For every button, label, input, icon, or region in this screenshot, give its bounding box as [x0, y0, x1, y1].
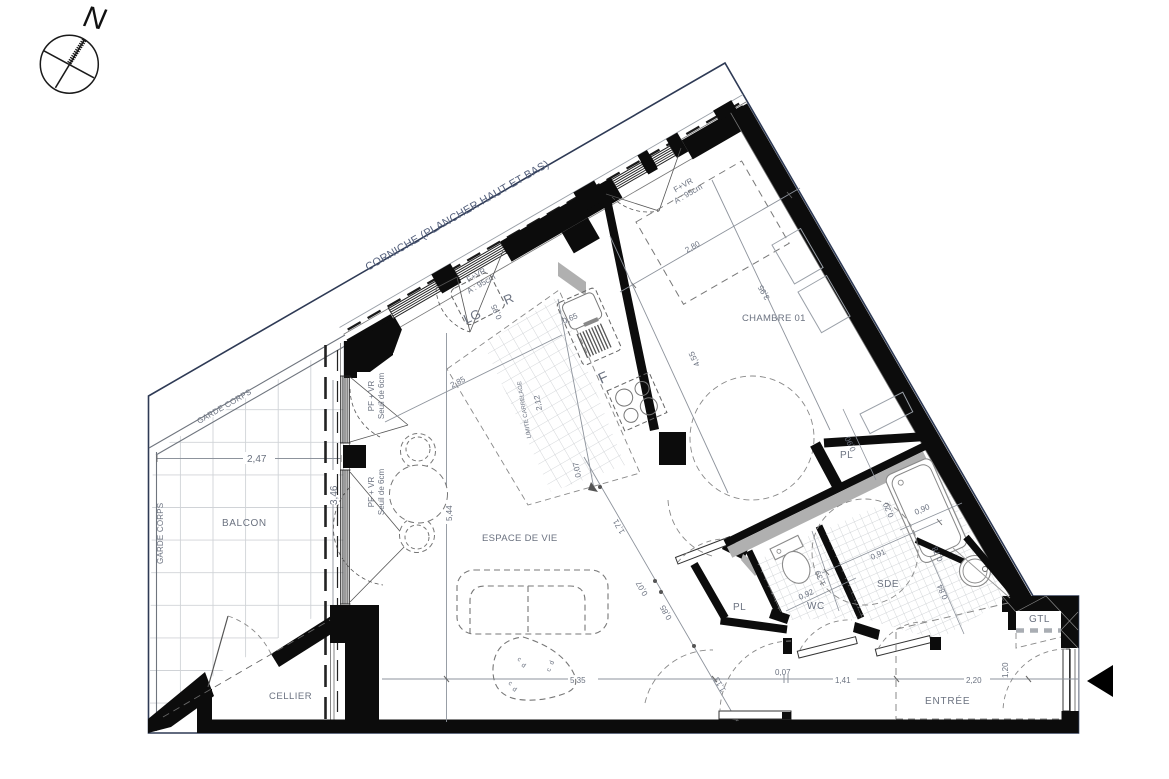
- svg-text:1,20: 1,20: [1001, 662, 1010, 678]
- svg-text:GARDE CORPS: GARDE CORPS: [156, 503, 165, 564]
- svg-text:PL: PL: [733, 602, 746, 613]
- svg-text:5,35: 5,35: [570, 676, 586, 685]
- svg-text:PF + VR: PF + VR: [367, 381, 376, 412]
- svg-text:0,07: 0,07: [775, 668, 791, 677]
- svg-text:GTL: GTL: [1029, 614, 1050, 625]
- svg-text:2,20: 2,20: [966, 676, 982, 685]
- svg-text:5,44: 5,44: [445, 505, 454, 521]
- svg-text:Seuil de 6cm: Seuil de 6cm: [377, 373, 386, 420]
- svg-text:CHAMBRE 01: CHAMBRE 01: [742, 313, 806, 324]
- svg-text:WC: WC: [807, 601, 825, 612]
- svg-text:1,41: 1,41: [835, 676, 851, 685]
- svg-text:2,47: 2,47: [247, 454, 267, 465]
- svg-text:ESPACE DE VIE: ESPACE DE VIE: [482, 533, 558, 544]
- svg-text:PF + VR: PF + VR: [367, 477, 376, 508]
- svg-text:ENTRÉE: ENTRÉE: [925, 694, 970, 707]
- svg-text:SDE: SDE: [877, 579, 899, 590]
- svg-text:Seuil de 6cm: Seuil de 6cm: [377, 469, 386, 516]
- svg-text:CELLIER: CELLIER: [269, 691, 312, 702]
- svg-text:BALCON: BALCON: [222, 518, 267, 529]
- svg-text:3,46: 3,46: [329, 485, 340, 505]
